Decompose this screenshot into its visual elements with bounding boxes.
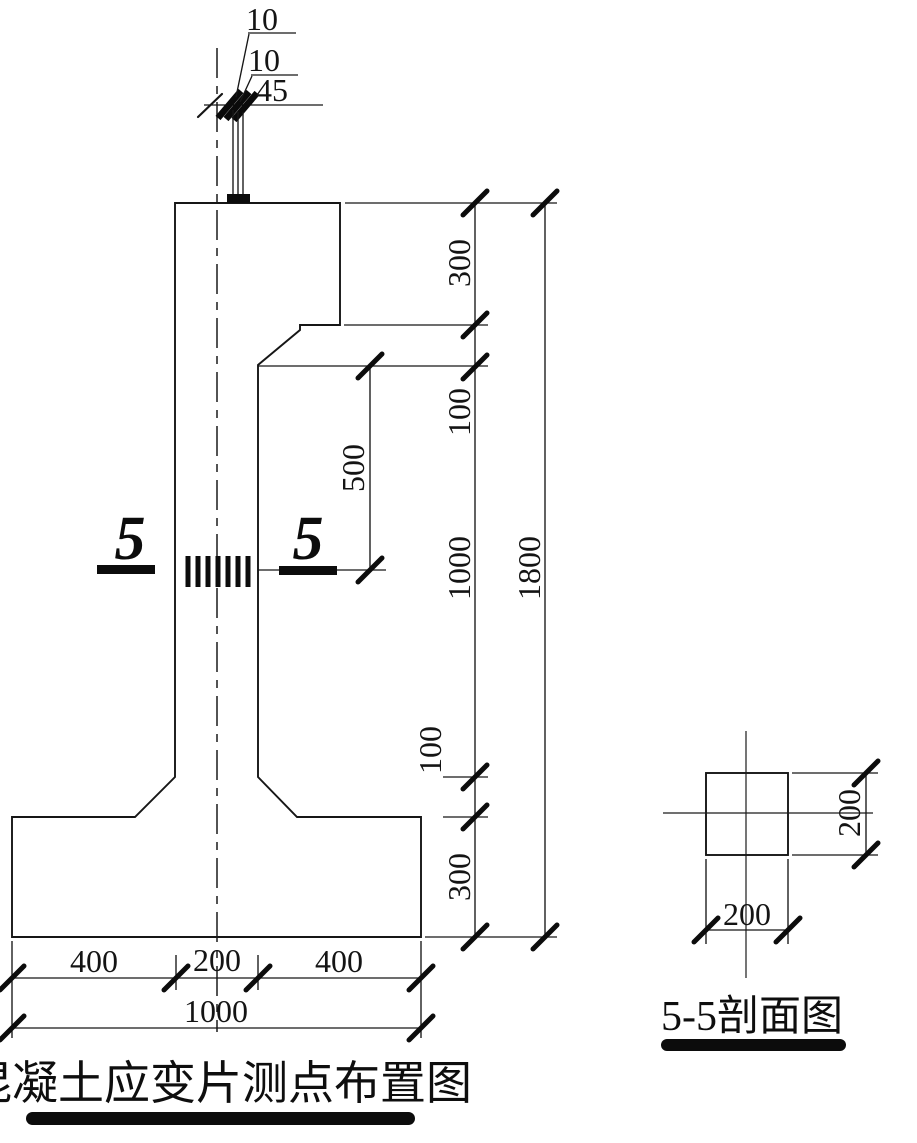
section-caption: 5-5剖面图: [661, 994, 843, 1040]
strain-gauge-bar: [236, 556, 241, 587]
section-marker-right-label: 5: [293, 505, 324, 573]
section-caption-underline: [661, 1039, 846, 1051]
section-marker-left-label: 5: [115, 505, 146, 573]
dim-label-300-upper: 300: [441, 239, 477, 287]
dim-label-1800-total: 1800: [511, 536, 547, 600]
strain-gauge-bar: [246, 556, 251, 587]
dim-label-100-lower: 100: [412, 726, 448, 774]
drawing-canvas: 10 10 45 5 5 500: [0, 0, 917, 1143]
section-marker-right-underline: [279, 566, 337, 575]
gauge-anchor-mark: [227, 194, 250, 203]
cad-drawing: 10 10 45 5 5 500: [0, 0, 917, 1143]
section-square: [706, 773, 788, 855]
dim-label-400-right: 400: [315, 943, 363, 979]
section-view: 200 200 5-5剖面图: [661, 731, 878, 1051]
dim-label-400-left: 400: [70, 943, 118, 979]
dim-label-200-center: 200: [193, 942, 241, 978]
strain-gauge-bar: [186, 556, 191, 587]
section-marker-left-underline: [97, 565, 155, 574]
dim-label-300-lower: 300: [441, 853, 477, 901]
strain-gauge-bar: [206, 556, 211, 587]
dim-label-10-upper: 10: [246, 1, 278, 37]
dim-label-1000-middle: 1000: [441, 536, 477, 600]
dim-label-section-height: 200: [831, 789, 867, 837]
strain-gauge-bar: [226, 556, 231, 587]
pier-elevation: 10 10 45 5 5 500: [0, 1, 557, 1125]
main-caption-underline: [26, 1112, 415, 1125]
section-cut-markers: 5 5: [97, 505, 386, 575]
main-caption: 混凝土应变片测点布置图: [0, 1058, 472, 1109]
dim-label-1000-total: 1000: [184, 993, 248, 1029]
dim-label-45: 45: [256, 72, 288, 108]
strain-gauge-bar: [196, 556, 201, 587]
section-dim-width: 200: [694, 859, 800, 944]
dim-label-section-width: 200: [723, 896, 771, 932]
strain-gauge-row: [186, 556, 251, 587]
section-dim-height: 200: [792, 761, 878, 867]
dim-label-500: 500: [335, 444, 371, 492]
dim-label-100-upper: 100: [441, 388, 477, 436]
strain-gauge-bar: [216, 556, 221, 587]
